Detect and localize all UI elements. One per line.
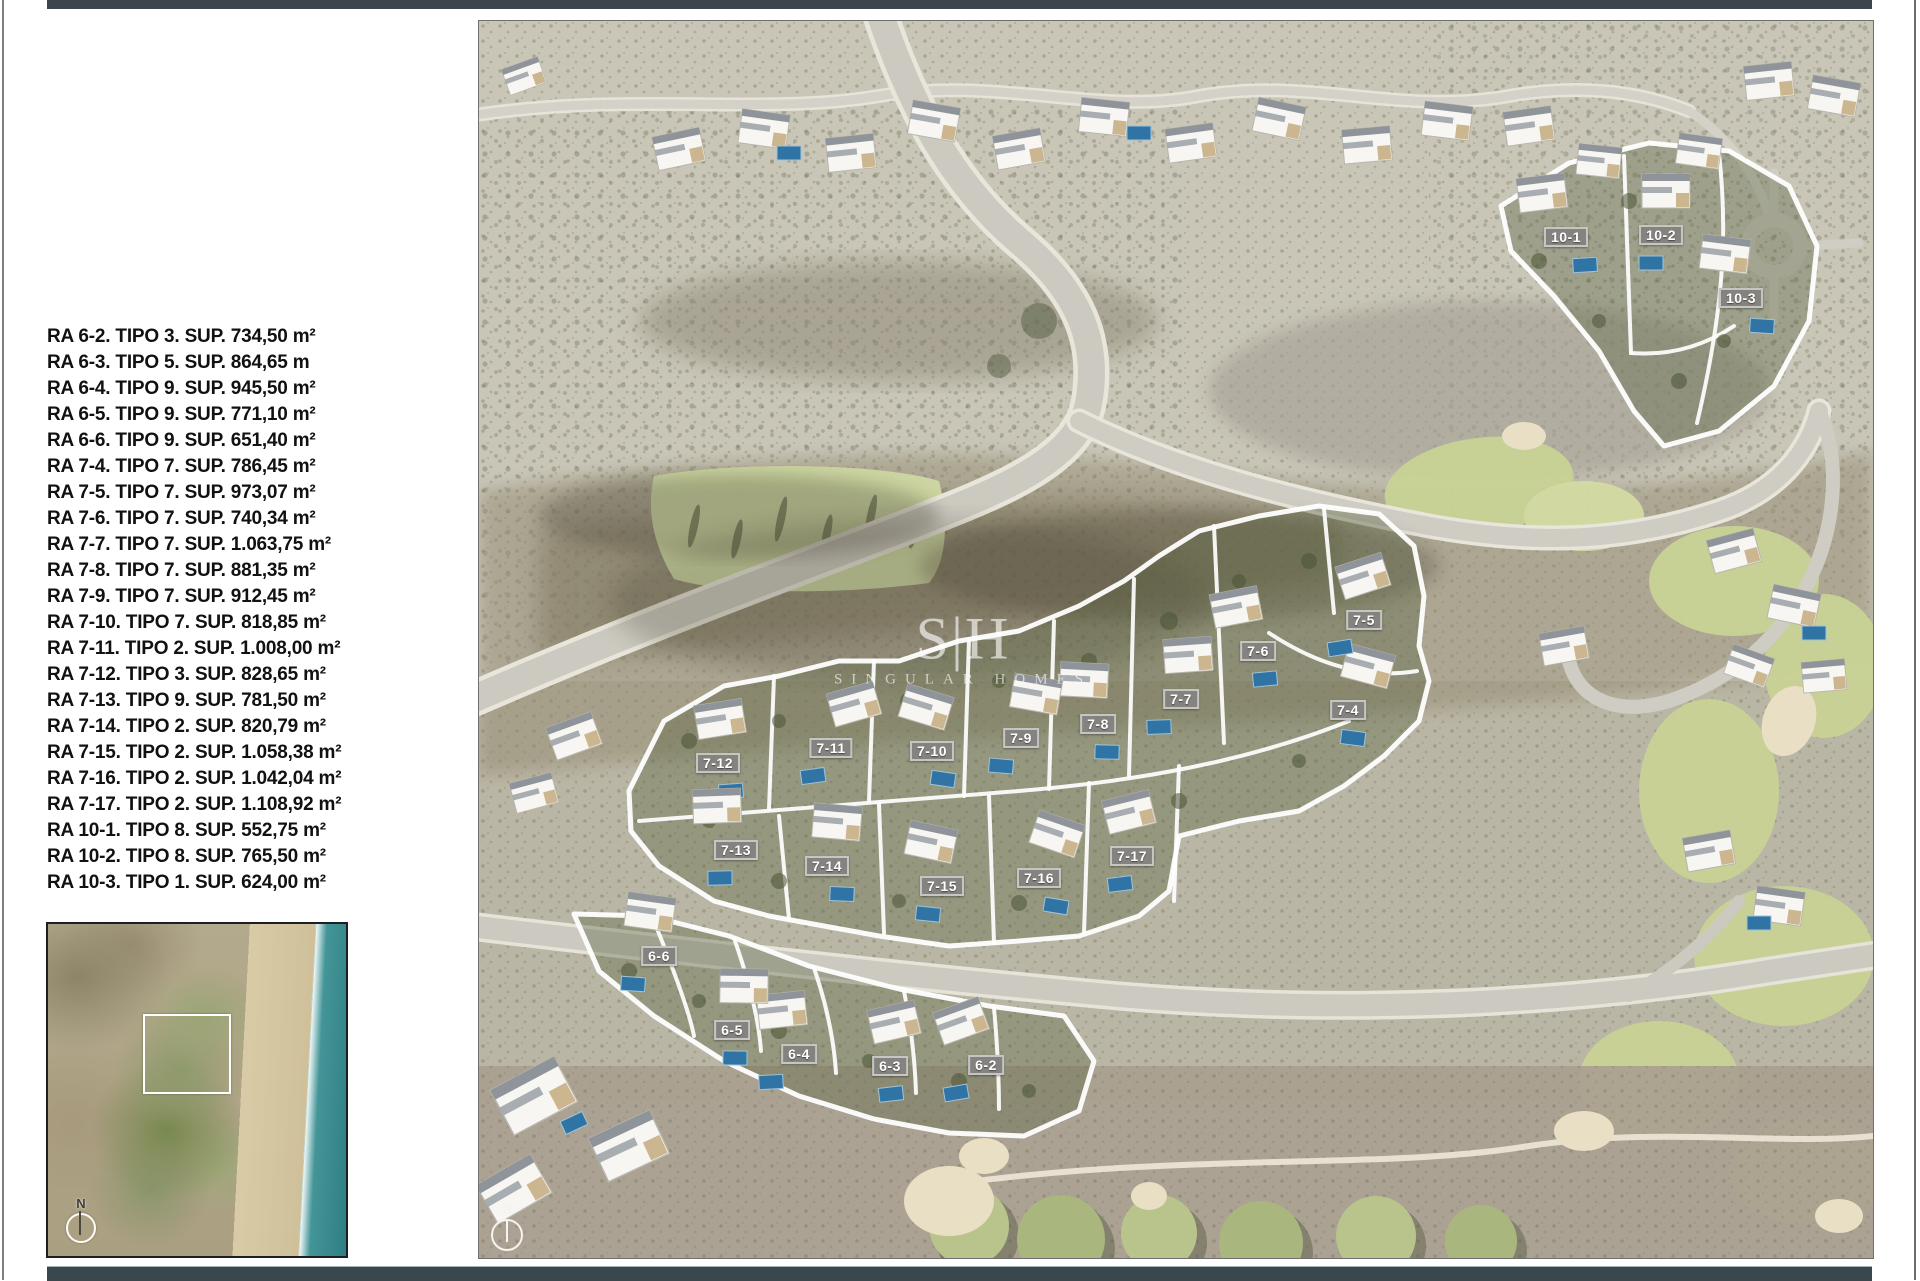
- plot-label-7-17: 7-17: [1110, 846, 1154, 866]
- plot-label-7-13: 7-13: [714, 840, 758, 860]
- plot-label-7-9: 7-9: [1003, 728, 1039, 748]
- plot-label-6-3: 6-3: [872, 1056, 908, 1076]
- legend-item: RA 6-6. TIPO 9. SUP. 651,40 m²: [47, 428, 407, 454]
- plot-label-7-15: 7-15: [920, 876, 964, 896]
- legend-item: RA 7-5. TIPO 7. SUP. 973,07 m²: [47, 480, 407, 506]
- legend-item: RA 7-4. TIPO 7. SUP. 786,45 m²: [47, 454, 407, 480]
- inset-compass-circle: [66, 1213, 96, 1243]
- inset-compass-icon: N: [66, 1197, 96, 1249]
- legend-item: RA 7-11. TIPO 2. SUP. 1.008,00 m²: [47, 636, 407, 662]
- legend-item: RA 7-9. TIPO 7. SUP. 912,45 m²: [47, 584, 407, 610]
- plot-label-6-5: 6-5: [714, 1020, 750, 1040]
- plot-label-6-6: 6-6: [641, 946, 677, 966]
- plot-legend: RA 6-2. TIPO 3. SUP. 734,50 m²RA 6-3. TI…: [47, 324, 407, 896]
- legend-item: RA 7-14. TIPO 2. SUP. 820,79 m²: [47, 714, 407, 740]
- right-edge-rule: [1914, 0, 1916, 1280]
- legend-item: RA 6-3. TIPO 5. SUP. 864,65 m: [47, 350, 407, 376]
- legend-item: RA 7-12. TIPO 3. SUP. 828,65 m²: [47, 662, 407, 688]
- plot-label-10-3: 10-3: [1719, 288, 1763, 308]
- plot-label-7-5: 7-5: [1346, 610, 1382, 630]
- legend-item: RA 7-13. TIPO 9. SUP. 781,50 m²: [47, 688, 407, 714]
- plot-label-7-8: 7-8: [1080, 714, 1116, 734]
- plot-label-7-16: 7-16: [1017, 868, 1061, 888]
- legend-item: RA 7-7. TIPO 7. SUP. 1.063,75 m²: [47, 532, 407, 558]
- left-edge-rule: [2, 0, 4, 1280]
- legend-item: RA 10-2. TIPO 8. SUP. 765,50 m²: [47, 844, 407, 870]
- legend-item: RA 10-3. TIPO 1. SUP. 624,00 m²: [47, 870, 407, 896]
- legend-item: RA 7-15. TIPO 2. SUP. 1.058,38 m²: [47, 740, 407, 766]
- legend-item: RA 7-8. TIPO 7. SUP. 881,35 m²: [47, 558, 407, 584]
- legend-item: RA 7-17. TIPO 2. SUP. 1.108,92 m²: [47, 792, 407, 818]
- plot-label-7-11: 7-11: [809, 738, 852, 758]
- inset-north-label: N: [66, 1197, 96, 1211]
- plot-label-7-12: 7-12: [696, 753, 740, 773]
- masterplan-map: N 6-26-36-46-56-67-47-57-67-77-87-97-107…: [478, 20, 1874, 1259]
- overview-inset-map: N: [46, 922, 348, 1258]
- legend-item: RA 7-16. TIPO 2. SUP. 1.042,04 m²: [47, 766, 407, 792]
- inset-highlight-rectangle: [143, 1014, 230, 1094]
- bottom-rule: [47, 1266, 1872, 1281]
- plot-label-7-7: 7-7: [1163, 689, 1199, 709]
- plot-label-6-2: 6-2: [968, 1055, 1004, 1075]
- plot-label-10-1: 10-1: [1544, 227, 1588, 247]
- plot-label-7-14: 7-14: [805, 856, 849, 876]
- plot-label-7-4: 7-4: [1330, 700, 1366, 720]
- legend-item: RA 10-1. TIPO 8. SUP. 552,75 m²: [47, 818, 407, 844]
- plot-label-7-6: 7-6: [1240, 641, 1276, 661]
- plot-label-10-2: 10-2: [1639, 225, 1683, 245]
- legend-item: RA 6-5. TIPO 9. SUP. 771,10 m²: [47, 402, 407, 428]
- legend-item: RA 7-10. TIPO 7. SUP. 818,85 m²: [47, 610, 407, 636]
- plot-label-6-4: 6-4: [781, 1044, 817, 1064]
- plot-label-layer: 6-26-36-46-56-67-47-57-67-77-87-97-107-1…: [479, 21, 1873, 1258]
- plot-label-7-10: 7-10: [910, 741, 954, 761]
- legend-item: RA 6-4. TIPO 9. SUP. 945,50 m²: [47, 376, 407, 402]
- legend-item: RA 6-2. TIPO 3. SUP. 734,50 m²: [47, 324, 407, 350]
- top-rule: [47, 0, 1872, 9]
- legend-item: RA 7-6. TIPO 7. SUP. 740,34 m²: [47, 506, 407, 532]
